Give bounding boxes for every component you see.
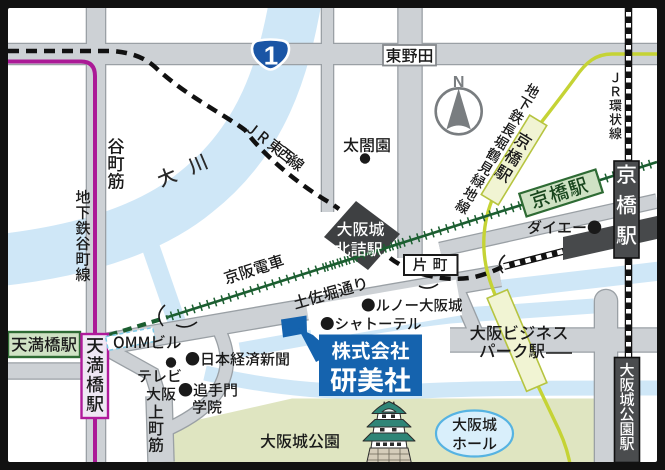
svg-text:N: N [453, 74, 465, 91]
svg-text:1: 1 [264, 41, 278, 71]
